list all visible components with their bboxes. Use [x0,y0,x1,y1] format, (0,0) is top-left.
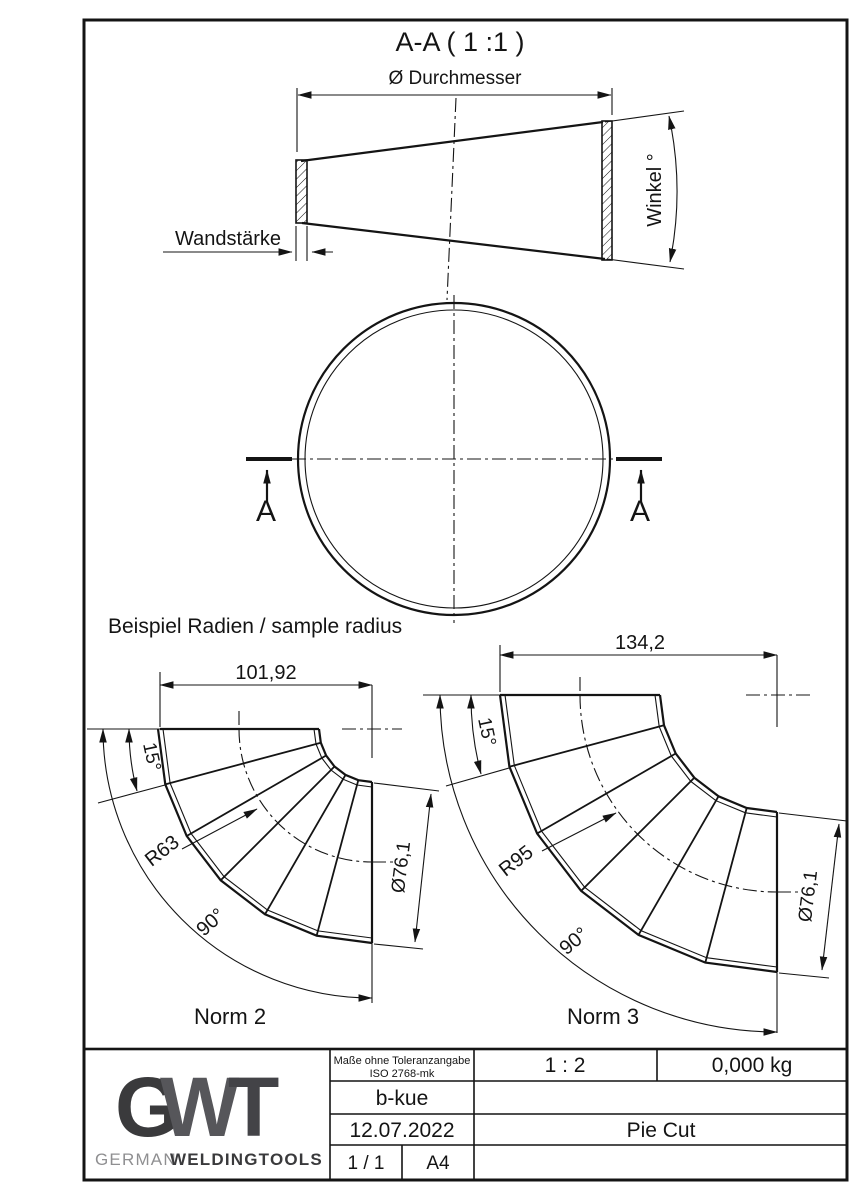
wall-thickness-label: Wandstärke [175,228,281,250]
norm3-radius: R95 [495,841,537,881]
extension-line [446,768,509,786]
brand-text-weldingtools: WELDINGTOOLS [170,1150,323,1169]
date-value: 12.07.2022 [349,1119,454,1142]
weight-value: 0,000 kg [712,1054,793,1077]
norm3-segment-angle: 15° [473,716,500,748]
radius-leader-line [182,809,257,849]
part-title: Pie Cut [627,1119,696,1142]
norm2-name: Norm 2 [194,1004,266,1029]
title-block: Maße ohne Toleranzangabe ISO 2768-mk 1 :… [84,1049,847,1180]
diameter-dimension-line [822,824,839,970]
norm2-width: 101,92 [235,662,296,684]
extension-line [779,973,829,978]
segment-angle-dimension-arc [129,729,137,791]
norm3-name: Norm 3 [567,1004,639,1029]
angle-label: Winkel ° [644,153,666,227]
tolerance-note-line1: Maße ohne Toleranzangabe [334,1055,471,1067]
paper-format: A4 [426,1153,450,1174]
norm2-diameter: Ø76,1 [388,840,415,894]
cone-right-wall-section [602,121,612,260]
segment-division-lines [165,743,358,936]
tolerance-note-line2: ISO 2768-mk [370,1068,435,1080]
radius-leader-line [542,813,616,851]
cone-top-edge [301,122,603,161]
extension-line [374,783,439,791]
gwt-logo: G W T GERMAN WELDINGTOOLS [95,1060,323,1169]
circle-top-view: A A [246,295,662,623]
cone-bottom-edge [302,223,605,259]
norm2-segment-angle: 15° [138,741,165,773]
cone-centerline [447,98,456,300]
scale-value: 1 : 2 [545,1054,586,1077]
section-title: A-A ( 1 :1 ) [395,27,524,57]
logo-letter-t: T [228,1060,279,1154]
brand-text-german: GERMAN [95,1150,177,1169]
norm3-diameter: Ø76,1 [795,869,822,923]
technical-drawing-canvas: A-A ( 1 :1 ) Ø Durchmesser Winkel ° Wand… [0,0,868,1199]
cone-left-wall-section [296,160,307,223]
sample-radius-heading: Beispiel Radien / sample radius [108,615,402,638]
diameter-dimension-line [415,794,431,942]
segment-line [317,780,359,936]
extension-line [605,111,684,122]
diameter-dimension-label: Ø Durchmesser [388,68,522,89]
section-view-aa: A-A ( 1 :1 ) Ø Durchmesser Winkel ° Wand… [163,27,684,300]
section-marker-left: A [256,495,276,528]
sheet-number: 1 / 1 [348,1153,385,1174]
section-marker-right: A [630,495,650,528]
angle-dimension-arc [669,116,677,262]
elbow-norm2: 101,92 15° 90° R63 Ø76,1 No [87,662,439,1029]
extension-line [374,944,423,949]
elbow-norm3: 134,2 15° 90° R95 Ø76,1 Nor [423,632,847,1033]
norm3-width: 134,2 [615,632,665,654]
drawing-page: A-A ( 1 :1 ) Ø Durchmesser Winkel ° Wand… [0,0,868,1199]
extension-line [607,259,684,269]
extension-line [779,813,847,821]
extension-line [98,785,165,803]
author-value: b-kue [376,1087,429,1110]
norm2-bend-angle: 90° [192,904,229,941]
norm2-radius: R63 [141,831,183,871]
